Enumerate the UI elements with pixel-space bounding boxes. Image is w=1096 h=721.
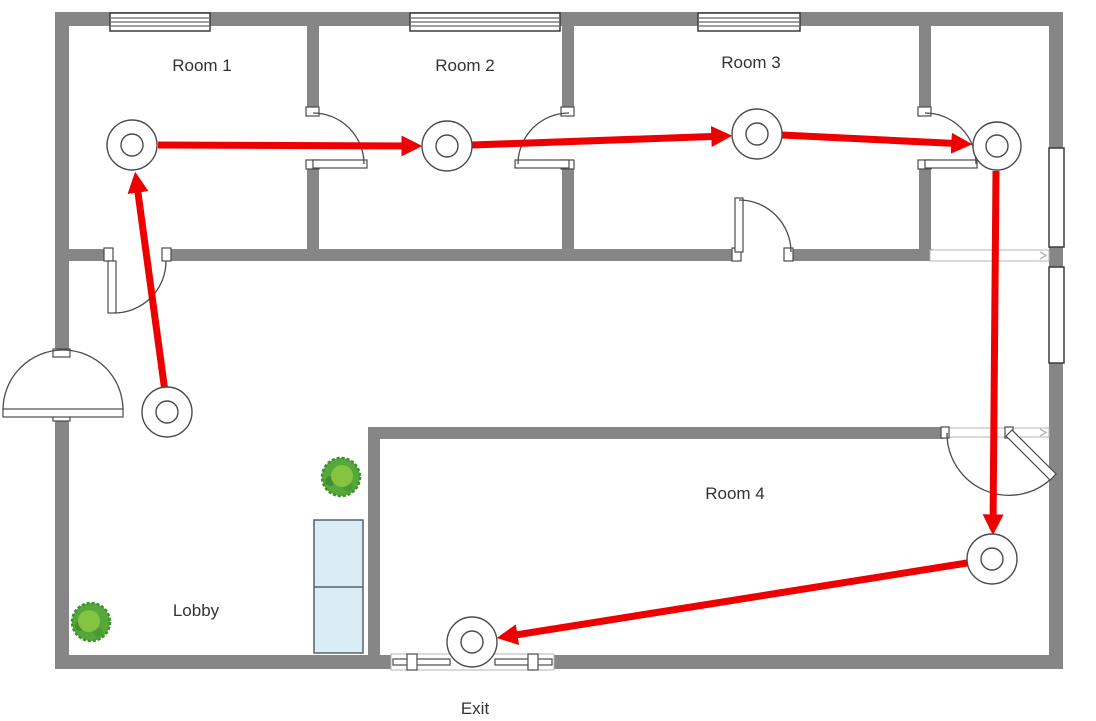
window-right-upper-icon xyxy=(1049,148,1064,247)
wall-left xyxy=(55,12,69,669)
route-segment-hallway-room4 xyxy=(993,171,996,529)
window-room1-icon xyxy=(110,13,210,31)
route-node-exit xyxy=(447,617,497,667)
label-room4: Room 4 xyxy=(705,484,765,503)
route-node-room3 xyxy=(732,109,782,159)
label-lobby: Lobby xyxy=(173,601,220,620)
route-node-room1 xyxy=(107,120,157,170)
route-segment-room4-exit xyxy=(503,563,967,637)
route-segment-room3-hallway xyxy=(782,135,966,144)
wall-openings xyxy=(54,116,1049,670)
wall-room4-top xyxy=(368,427,943,439)
passage-hallway xyxy=(930,250,1049,261)
route-segment-room2-room3 xyxy=(472,136,726,145)
interior-walls xyxy=(69,26,943,655)
opening-lobby-door xyxy=(104,248,171,262)
floor-plan-svg: Room 1 Room 2 Room 3 Room 4 Lobby Exit xyxy=(0,0,1096,721)
route-segment-room1-room2 xyxy=(158,145,416,146)
plant-icon xyxy=(322,458,360,496)
route-segment-lobby-room1 xyxy=(136,178,165,388)
wall-bottom xyxy=(55,655,1063,669)
route-node-room4 xyxy=(967,534,1017,584)
plant-icon xyxy=(72,603,110,641)
route-node-room2 xyxy=(422,121,472,171)
floor-plan-canvas: Room 1 Room 2 Room 3 Room 4 Lobby Exit xyxy=(0,0,1096,721)
opening-room1-room2 xyxy=(306,116,320,160)
furniture-cabinet xyxy=(314,520,363,653)
route-node-hallway xyxy=(973,122,1021,170)
window-right-lower-icon xyxy=(1049,267,1064,363)
opening-room3-hallway xyxy=(918,116,932,160)
wall-corridor xyxy=(69,249,932,261)
wall-room4-left xyxy=(368,427,380,655)
label-exit: Exit xyxy=(461,699,490,718)
label-room3: Room 3 xyxy=(721,53,781,72)
route-node-lobby xyxy=(142,387,192,437)
label-room2: Room 2 xyxy=(435,56,495,75)
label-room1: Room 1 xyxy=(172,56,232,75)
window-room3-icon xyxy=(698,13,800,31)
window-room2-icon xyxy=(410,13,560,31)
